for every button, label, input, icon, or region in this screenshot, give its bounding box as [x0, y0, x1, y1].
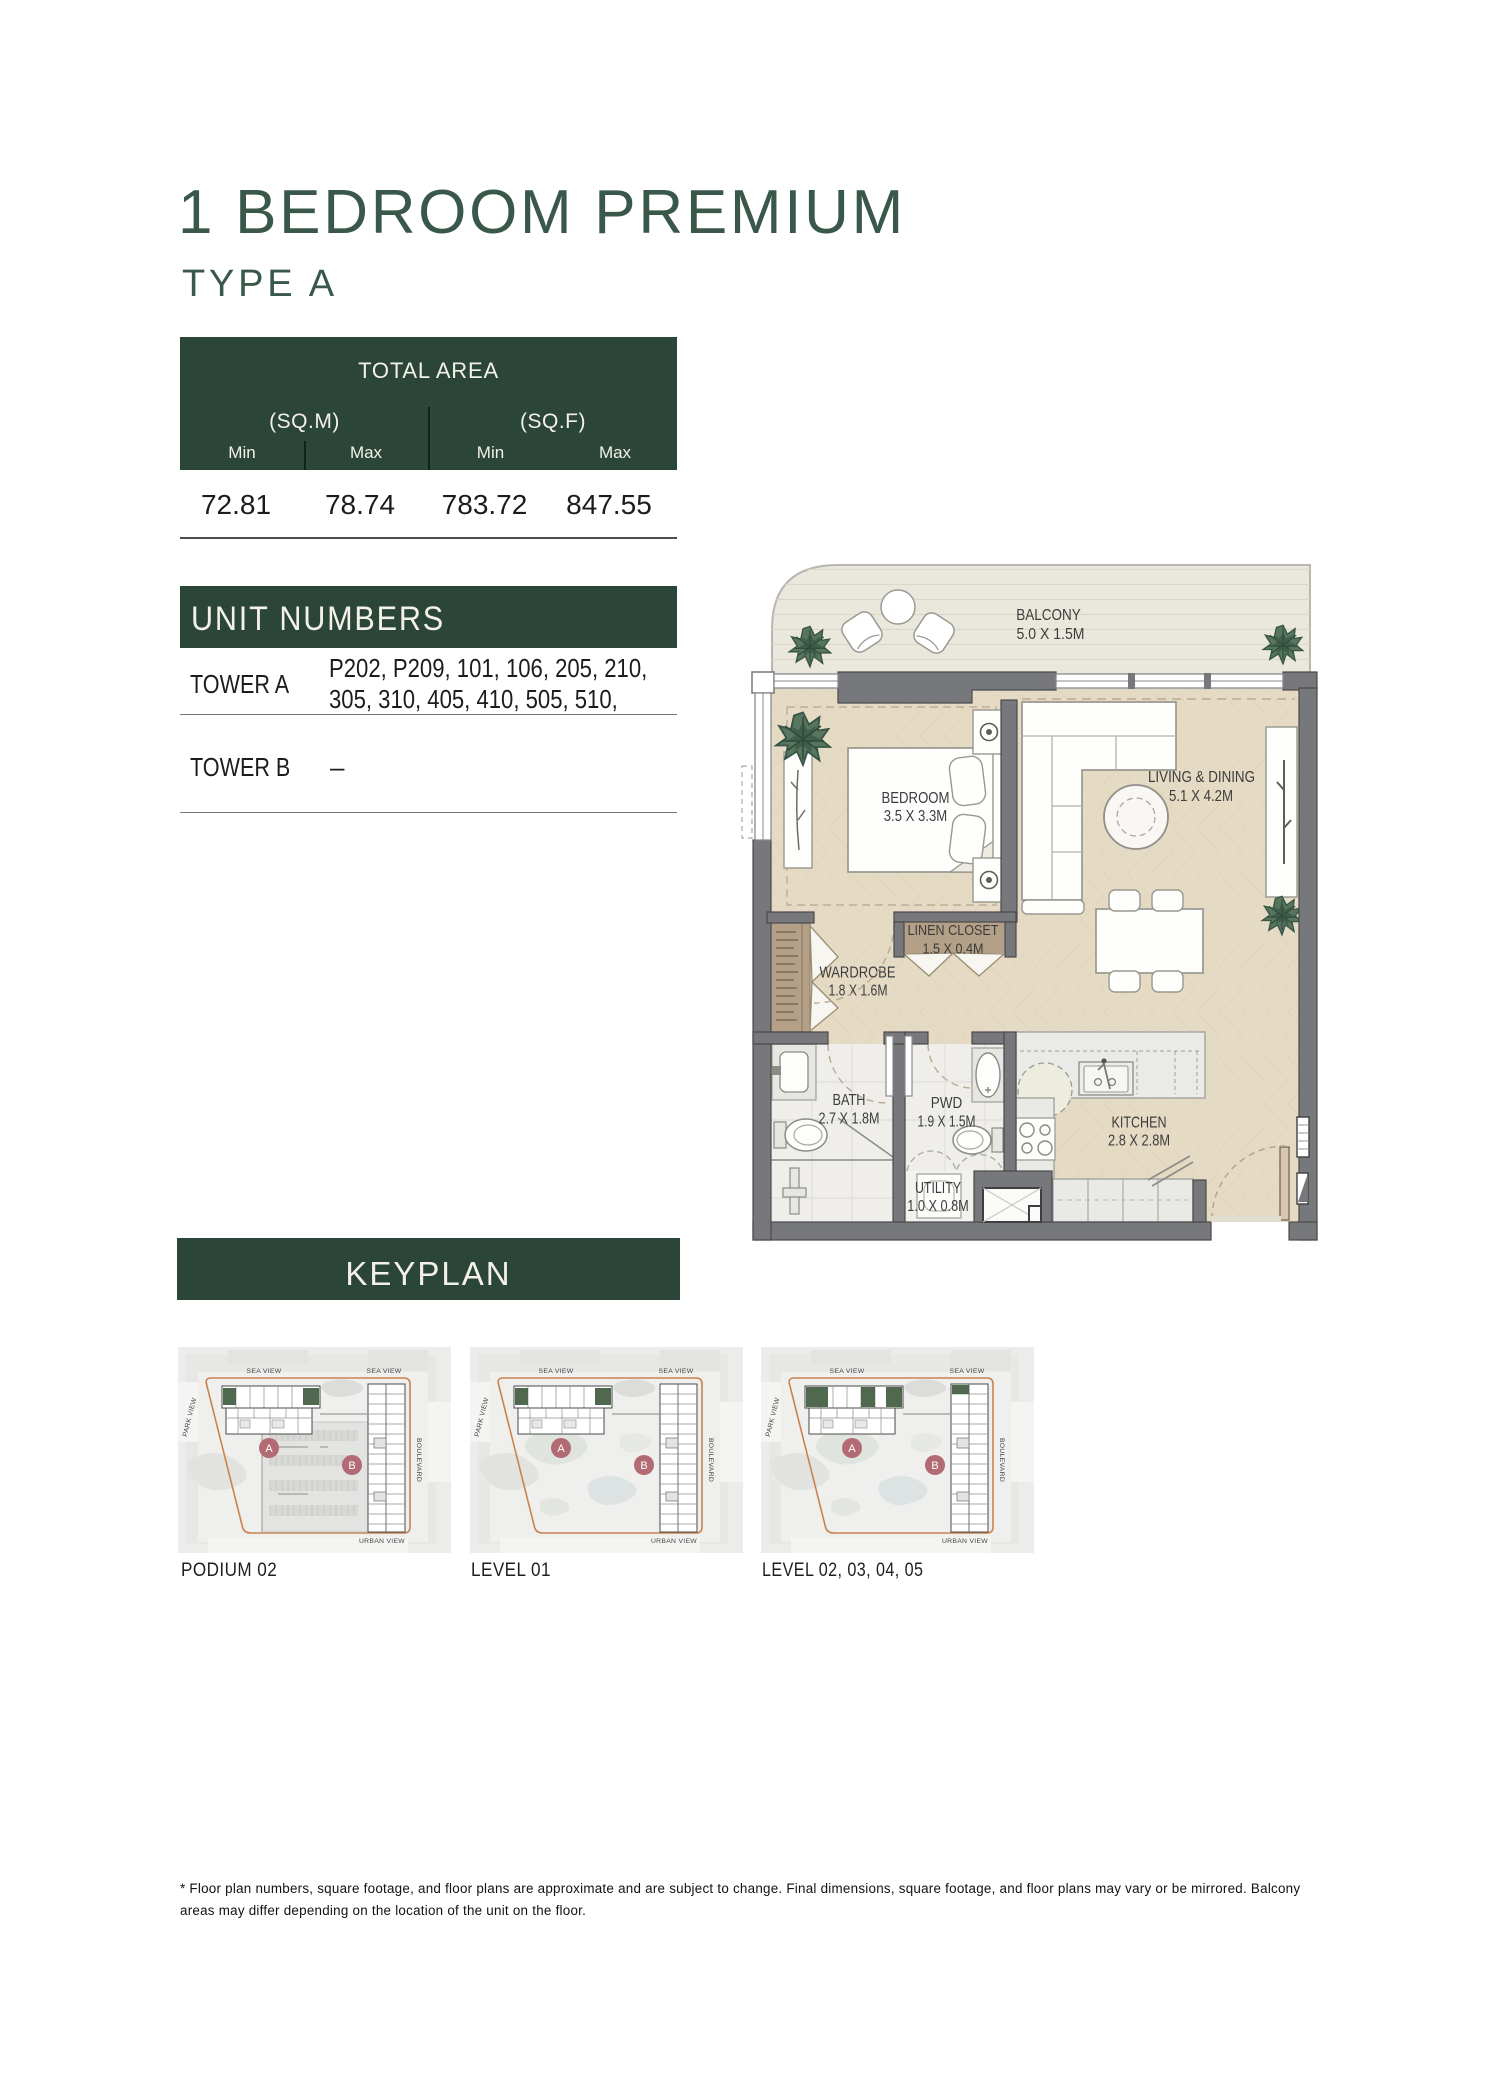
svg-text:1.5 X 0.4M: 1.5 X 0.4M — [923, 941, 984, 958]
svg-text:1.9 X 1.5M: 1.9 X 1.5M — [918, 1113, 976, 1130]
svg-text:B: B — [348, 1460, 355, 1472]
svg-text:3.5 X 3.3M: 3.5 X 3.3M — [884, 808, 948, 825]
svg-text:URBAN VIEW: URBAN VIEW — [942, 1538, 988, 1545]
svg-text:B: B — [640, 1460, 647, 1472]
svg-text:LINEN CLOSET: LINEN CLOSET — [908, 922, 999, 939]
svg-text:URBAN VIEW: URBAN VIEW — [651, 1538, 697, 1545]
svg-text:B: B — [931, 1460, 938, 1472]
svg-text:LIVING & DINING: LIVING & DINING — [1148, 769, 1255, 786]
svg-text:BOULEVARD: BOULEVARD — [415, 1438, 422, 1482]
svg-text:BATH: BATH — [833, 1092, 866, 1109]
svg-text:BALCONY: BALCONY — [1016, 607, 1081, 624]
svg-text:1.0 X 0.8M: 1.0 X 0.8M — [907, 1198, 969, 1215]
svg-text:5.0 X 1.5M: 5.0 X 1.5M — [1017, 626, 1085, 643]
svg-text:KITCHEN: KITCHEN — [1112, 1115, 1167, 1132]
svg-text:1.8 X 1.6M: 1.8 X 1.6M — [829, 983, 888, 1000]
svg-text:SEA VIEW: SEA VIEW — [659, 1368, 694, 1375]
svg-text:SEA VIEW: SEA VIEW — [539, 1368, 574, 1375]
svg-text:BOULEVARD: BOULEVARD — [707, 1438, 714, 1482]
svg-text:BEDROOM: BEDROOM — [882, 790, 950, 807]
svg-text:A: A — [848, 1443, 856, 1455]
svg-text:SEA VIEW: SEA VIEW — [950, 1368, 985, 1375]
svg-text:PWD: PWD — [931, 1095, 963, 1112]
svg-text:SEA VIEW: SEA VIEW — [830, 1368, 865, 1375]
svg-text:BOULEVARD: BOULEVARD — [998, 1438, 1005, 1482]
svg-text:UTILITY: UTILITY — [915, 1180, 961, 1197]
svg-text:2.7 X 1.8M: 2.7 X 1.8M — [819, 1111, 880, 1128]
svg-text:SEA VIEW: SEA VIEW — [247, 1368, 282, 1375]
svg-text:SEA VIEW: SEA VIEW — [367, 1368, 402, 1375]
svg-text:A: A — [557, 1443, 565, 1455]
svg-text:2.8 X 2.8M: 2.8 X 2.8M — [1108, 1133, 1170, 1150]
svg-text:A: A — [265, 1443, 273, 1455]
svg-text:WARDROBE: WARDROBE — [820, 965, 896, 982]
svg-text:URBAN VIEW: URBAN VIEW — [359, 1538, 405, 1545]
svg-text:5.1 X 4.2M: 5.1 X 4.2M — [1169, 788, 1233, 805]
